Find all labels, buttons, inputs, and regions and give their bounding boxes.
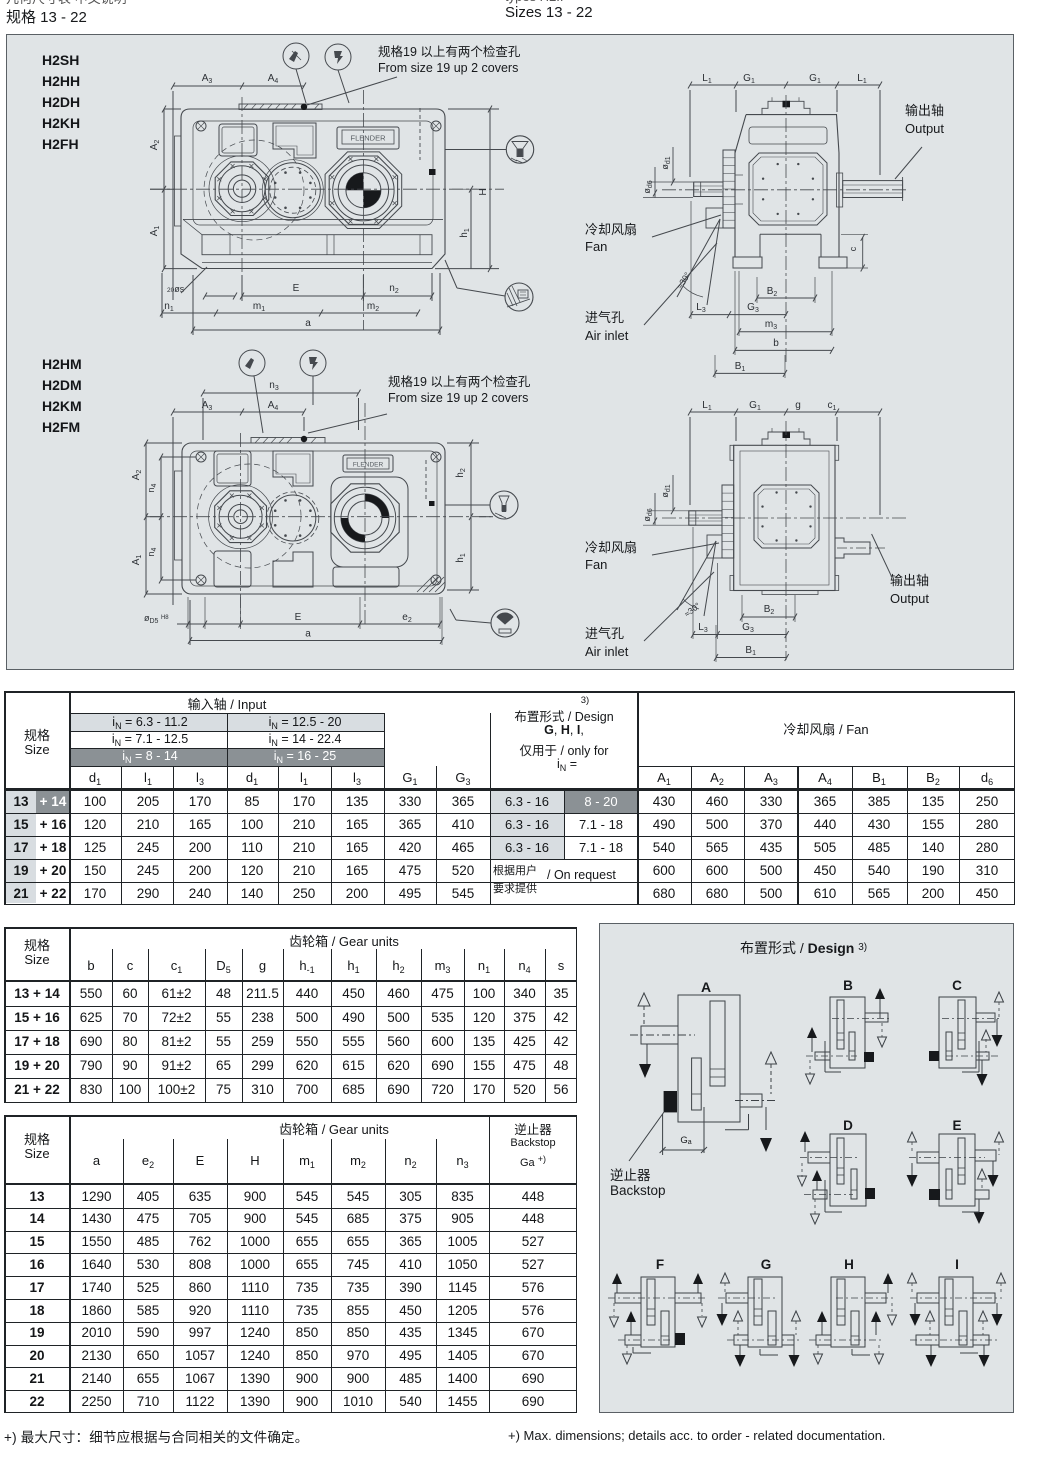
svg-text:E: E	[293, 283, 300, 294]
svg-text:c: c	[848, 246, 858, 251]
svg-text:a: a	[305, 629, 311, 640]
svg-text:L1: L1	[857, 73, 867, 85]
svg-text:A1: A1	[131, 555, 143, 566]
svg-text:Fan: Fan	[585, 239, 607, 254]
svg-text:布置形式 / Design 3): 布置形式 / Design 3)	[740, 940, 867, 956]
svg-text:ød6: ød6	[642, 508, 654, 521]
svg-text:规格19 以上有两个检查孔: 规格19 以上有两个检查孔	[378, 44, 521, 59]
svg-text:进气孔: 进气孔	[585, 310, 624, 325]
svg-text:Air inlet: Air inlet	[585, 328, 629, 343]
svg-text:A3: A3	[202, 73, 213, 85]
svg-text:FLENDER: FLENDER	[353, 462, 384, 469]
svg-text:≈30°: ≈30°	[682, 600, 702, 619]
svg-text:L3: L3	[696, 302, 706, 314]
svg-text:H: H	[844, 1257, 854, 1272]
svg-text:ød1: ød1	[660, 484, 672, 497]
svg-text:L3: L3	[698, 622, 708, 634]
svg-text:a: a	[305, 318, 311, 329]
svg-text:E: E	[952, 1118, 961, 1133]
svg-text:From size 19 up 2 covers: From size 19 up 2 covers	[388, 391, 528, 405]
svg-text:D: D	[843, 1118, 853, 1133]
svg-text:规格19 以上有两个检查孔: 规格19 以上有两个检查孔	[388, 374, 531, 389]
svg-text:Air inlet: Air inlet	[585, 644, 629, 659]
svg-text:H2HM: H2HM	[42, 356, 82, 372]
svg-text:F: F	[656, 1257, 664, 1272]
svg-text:Ga: Ga	[680, 1135, 691, 1146]
svg-text:h1: h1	[459, 228, 471, 238]
svg-text:A2: A2	[149, 140, 161, 151]
svg-text:m2: m2	[367, 301, 379, 313]
svg-text:m3: m3	[765, 319, 777, 331]
svg-text:h2: h2	[455, 468, 467, 478]
svg-text:From size 19 up 2 covers: From size 19 up 2 covers	[378, 61, 518, 75]
svg-text:Output: Output	[890, 591, 929, 606]
svg-text:E: E	[295, 612, 302, 623]
svg-text:H: H	[478, 188, 489, 195]
svg-text:H2FM: H2FM	[42, 419, 80, 435]
svg-text:L1: L1	[702, 400, 712, 412]
svg-text:G1: G1	[809, 73, 821, 85]
svg-text:A: A	[701, 979, 711, 995]
svg-text:G3: G3	[747, 302, 759, 314]
svg-text:g: g	[795, 400, 801, 411]
svg-text:H2FH: H2FH	[42, 136, 79, 152]
svg-text:冷却风扇: 冷却风扇	[585, 222, 637, 237]
svg-text:H2SH: H2SH	[42, 52, 79, 68]
svg-text:I: I	[955, 1257, 959, 1272]
svg-text:冷却风扇: 冷却风扇	[585, 540, 637, 555]
svg-text:Backstop: Backstop	[610, 1183, 666, 1198]
svg-text:Output: Output	[905, 121, 944, 136]
svg-text:H2KM: H2KM	[42, 398, 82, 414]
svg-text:输出轴: 输出轴	[890, 573, 929, 588]
svg-text:FLENDER: FLENDER	[350, 134, 386, 143]
svg-text:G1: G1	[743, 73, 755, 85]
svg-text:B1: B1	[735, 361, 746, 373]
svg-text:n2: n2	[389, 283, 399, 295]
svg-text:H2DM: H2DM	[42, 377, 82, 393]
svg-text:进气孔: 进气孔	[585, 626, 624, 641]
svg-text:L1: L1	[702, 73, 712, 85]
svg-text:C: C	[952, 978, 962, 993]
svg-text:ød6: ød6	[642, 180, 654, 193]
svg-text:b: b	[773, 338, 779, 349]
svg-text:H2HH: H2HH	[42, 73, 80, 89]
svg-text:G: G	[761, 1257, 772, 1272]
svg-text:A1: A1	[149, 226, 161, 237]
svg-text:c1: c1	[828, 400, 837, 412]
svg-text:H2DH: H2DH	[42, 94, 80, 110]
svg-text:n1: n1	[164, 301, 174, 313]
svg-text:Fan: Fan	[585, 557, 607, 572]
svg-text:A3: A3	[202, 400, 213, 412]
svg-text:A2: A2	[131, 470, 143, 481]
svg-text:输出轴: 输出轴	[905, 103, 944, 118]
svg-text:B2: B2	[764, 604, 775, 616]
svg-text:n4: n4	[146, 483, 158, 492]
svg-text:ød1: ød1	[660, 156, 672, 169]
svg-text:e2: e2	[402, 612, 412, 624]
svg-text:A4: A4	[268, 73, 279, 85]
svg-text:G3: G3	[742, 622, 754, 634]
svg-text:n4: n4	[146, 547, 158, 556]
svg-text:H2KH: H2KH	[42, 115, 80, 131]
svg-text:øD5 H8: øD5 H8	[144, 613, 169, 625]
svg-text:G1: G1	[749, 400, 761, 412]
svg-text:逆止器: 逆止器	[610, 1168, 651, 1183]
svg-text:B: B	[843, 978, 853, 993]
svg-text:m1: m1	[253, 301, 265, 313]
svg-text:B1: B1	[745, 645, 756, 657]
svg-text:A4: A4	[268, 400, 279, 412]
svg-text:n3: n3	[269, 380, 279, 392]
svg-text:B2: B2	[767, 286, 778, 298]
svg-text:h1: h1	[455, 553, 467, 563]
